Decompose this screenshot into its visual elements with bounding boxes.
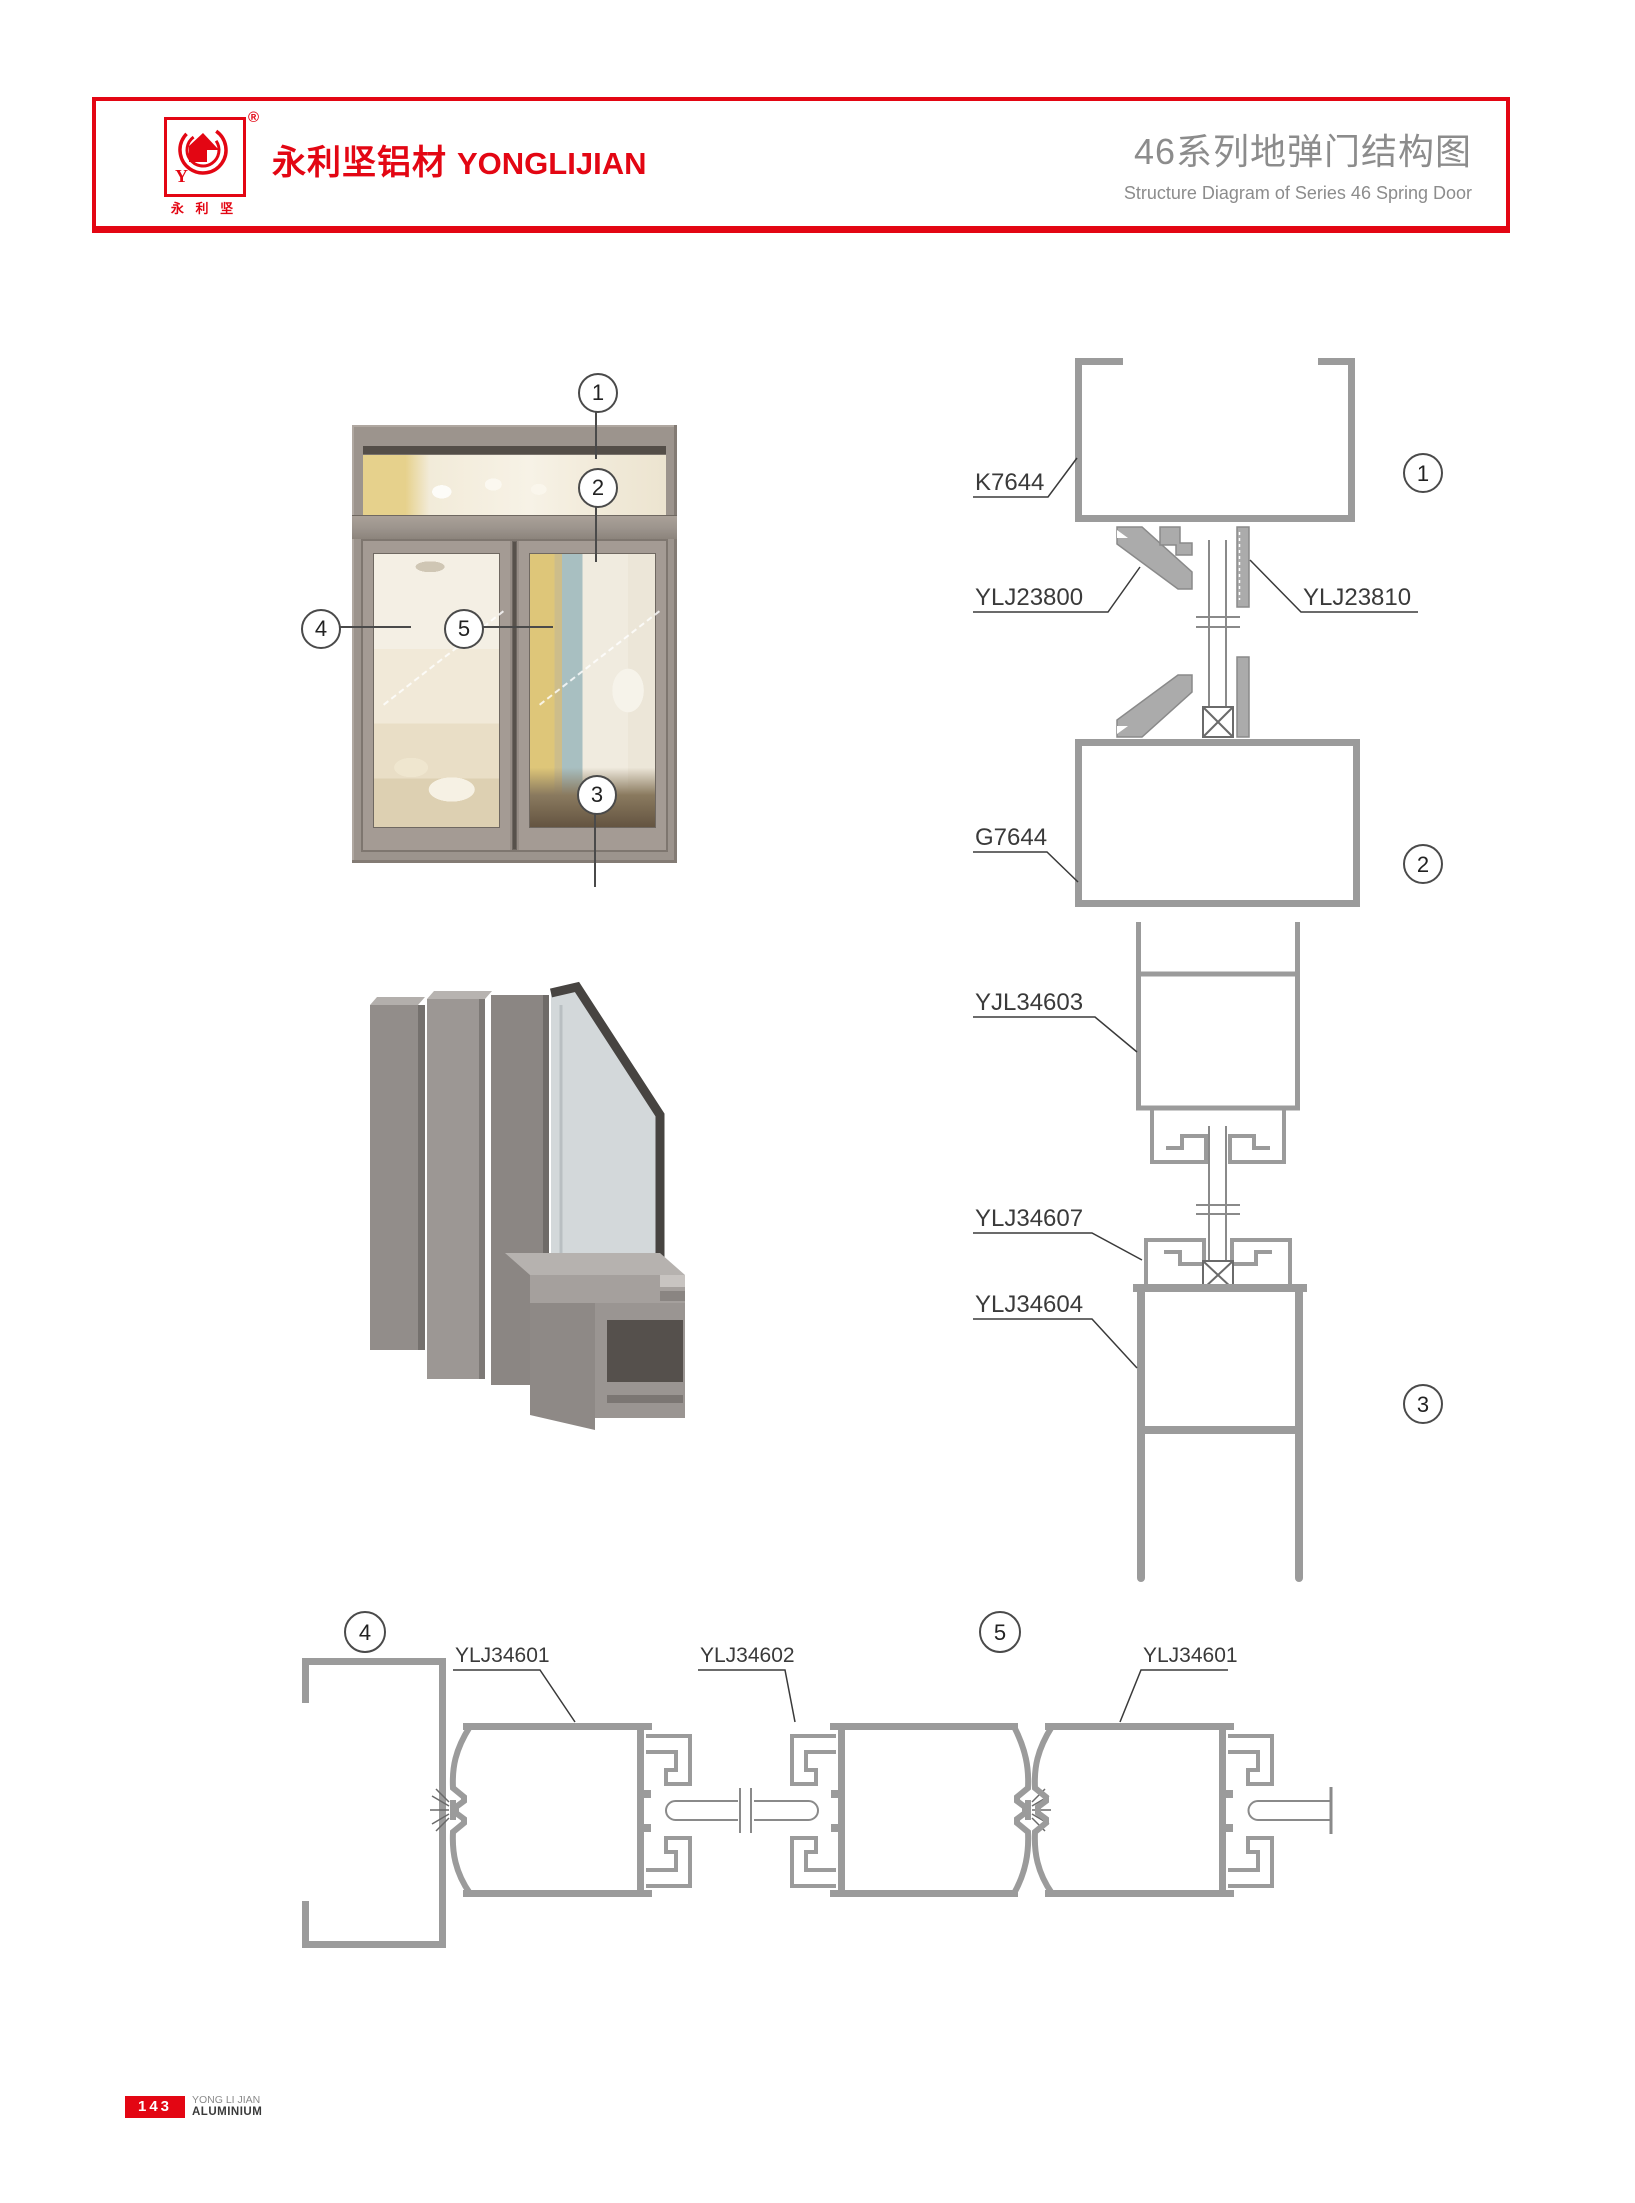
profile-3d-render	[355, 975, 685, 1485]
opening-direction-dash	[539, 610, 660, 705]
gasket-icon	[430, 1789, 456, 1831]
door-leaf-left-glass	[373, 553, 500, 828]
section-callout-3: 3	[1404, 1385, 1442, 1423]
door-callout-2: 2	[578, 468, 618, 508]
section-callout-2: 2	[1404, 845, 1442, 883]
page-title-en: Structure Diagram of Series 46 Spring Do…	[1124, 183, 1472, 204]
callout-line-5	[480, 626, 553, 628]
footer-division: ALUMINIUM	[192, 2106, 262, 2118]
svg-text:1: 1	[1417, 461, 1429, 486]
catalog-page: Y ® 永 利 坚 永利坚铝材YONGLIJIAN 46系列地弹门结构图 Str…	[0, 0, 1635, 2203]
svg-text:YLJ34602: YLJ34602	[700, 1644, 795, 1667]
door-callout-5: 5	[444, 609, 484, 649]
svg-text:YLJ23800: YLJ23800	[975, 584, 1083, 611]
label-left-stile: YLJ34601	[453, 1644, 575, 1722]
profile-wall-channel	[306, 1662, 443, 1945]
footer-company: YONG LI JIAN ALUMINIUM	[192, 2094, 262, 2118]
svg-text:3: 3	[1417, 1392, 1429, 1417]
label-transom-bead-right: YLJ23810	[1250, 560, 1418, 612]
section-callout-5: 5	[980, 1612, 1020, 1652]
label-door-bottom-rail: YLJ34604	[973, 1291, 1137, 1368]
label-top-frame: K7644	[973, 458, 1077, 497]
label-door-top-rail: YJL34603	[973, 989, 1137, 1052]
brand-name-en: YONGLIJIAN	[457, 146, 646, 181]
callout-line-3	[594, 811, 596, 887]
svg-text:YLJ23810: YLJ23810	[1303, 584, 1411, 611]
header: Y ® 永 利 坚 永利坚铝材YONGLIJIAN 46系列地弹门结构图 Str…	[92, 97, 1510, 233]
door-leaves	[361, 539, 668, 852]
door-leaf-left	[363, 541, 510, 850]
profile-right-stile	[1035, 1723, 1272, 1897]
door-callout-1: 1	[578, 373, 618, 413]
glass-panel-section-left	[666, 1788, 818, 1833]
label-meeting-stile: YLJ34602	[698, 1644, 795, 1722]
door-illustration	[352, 425, 677, 863]
svg-text:YLJ34607: YLJ34607	[975, 1205, 1083, 1232]
svg-text:K7644: K7644	[975, 469, 1044, 496]
svg-text:YLJ34601: YLJ34601	[1143, 1644, 1238, 1667]
page-title: 46系列地弹门结构图 Structure Diagram of Series 4…	[1124, 123, 1472, 204]
svg-text:G7644: G7644	[975, 824, 1047, 851]
brand-logo: Y	[164, 117, 246, 197]
profile-transom-bottom-frame	[1079, 743, 1357, 904]
profile-top-frame	[1079, 362, 1352, 519]
label-transom-bead-left: YLJ23800	[973, 567, 1140, 612]
callout-line-4	[337, 626, 411, 628]
label-transom-bottom-frame: G7644	[973, 824, 1078, 882]
profile-left-stile	[430, 1723, 690, 1897]
horizontal-section-diagram: 4 5	[280, 1600, 1410, 2020]
profile-meeting-stile	[792, 1723, 1051, 1897]
transom-rail	[352, 515, 677, 539]
svg-text:YJL34603: YJL34603	[975, 989, 1083, 1016]
section-callout-4: 4	[345, 1612, 385, 1652]
vertical-section-diagram: K7644 1	[940, 350, 1500, 1600]
label-glazing-bead: YLJ34607	[973, 1205, 1142, 1260]
svg-text:4: 4	[359, 1620, 371, 1645]
page-number-badge: 143	[125, 2096, 185, 2118]
logo-caption: 永 利 坚	[156, 198, 252, 217]
section-callout-1: 1	[1404, 454, 1442, 492]
footer-company-name: YONG LI JIAN	[192, 2094, 262, 2106]
transom-shade	[363, 446, 666, 454]
svg-text:2: 2	[1417, 852, 1429, 877]
page-title-cn: 46系列地弹门结构图	[1124, 123, 1472, 175]
transom-glazing-assembly	[1117, 527, 1249, 737]
transom-glass-photo	[363, 454, 666, 515]
label-right-stile: YLJ34601	[1120, 1644, 1238, 1722]
brand-name-cn: 永利坚铝材	[272, 144, 447, 182]
callout-line-1	[595, 411, 597, 459]
brand-name: 永利坚铝材YONGLIJIAN	[272, 135, 646, 184]
logo-monogram: Y	[175, 166, 188, 186]
center-mullion	[512, 541, 517, 850]
registered-trademark-icon: ®	[248, 109, 259, 126]
svg-text:YLJ34601: YLJ34601	[455, 1644, 550, 1667]
glass-panel-section-right	[1249, 1787, 1332, 1834]
logo-emblem-icon: Y	[167, 120, 237, 188]
profile-door-bottom-rail	[1133, 1288, 1307, 1578]
callout-line-2	[595, 504, 597, 562]
door-callout-4: 4	[301, 609, 341, 649]
svg-text:YLJ34604: YLJ34604	[975, 1291, 1083, 1318]
door-callout-3: 3	[577, 775, 617, 815]
setting-block	[1203, 707, 1233, 737]
svg-text:5: 5	[994, 1620, 1006, 1645]
